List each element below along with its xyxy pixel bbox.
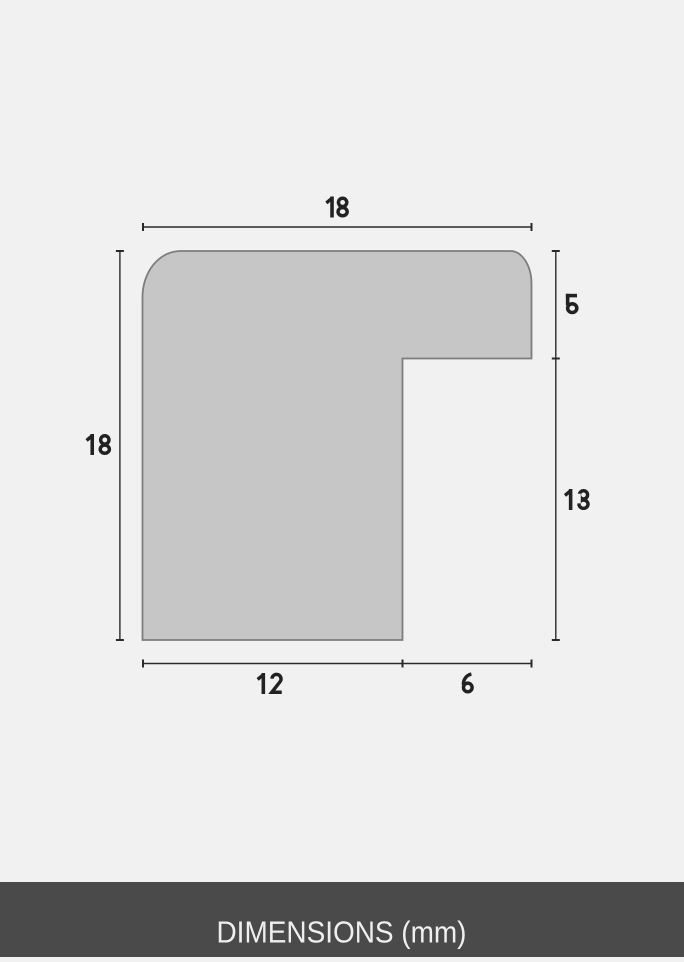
- svg-text:DIMENSIONS (mm): DIMENSIONS (mm): [217, 915, 467, 950]
